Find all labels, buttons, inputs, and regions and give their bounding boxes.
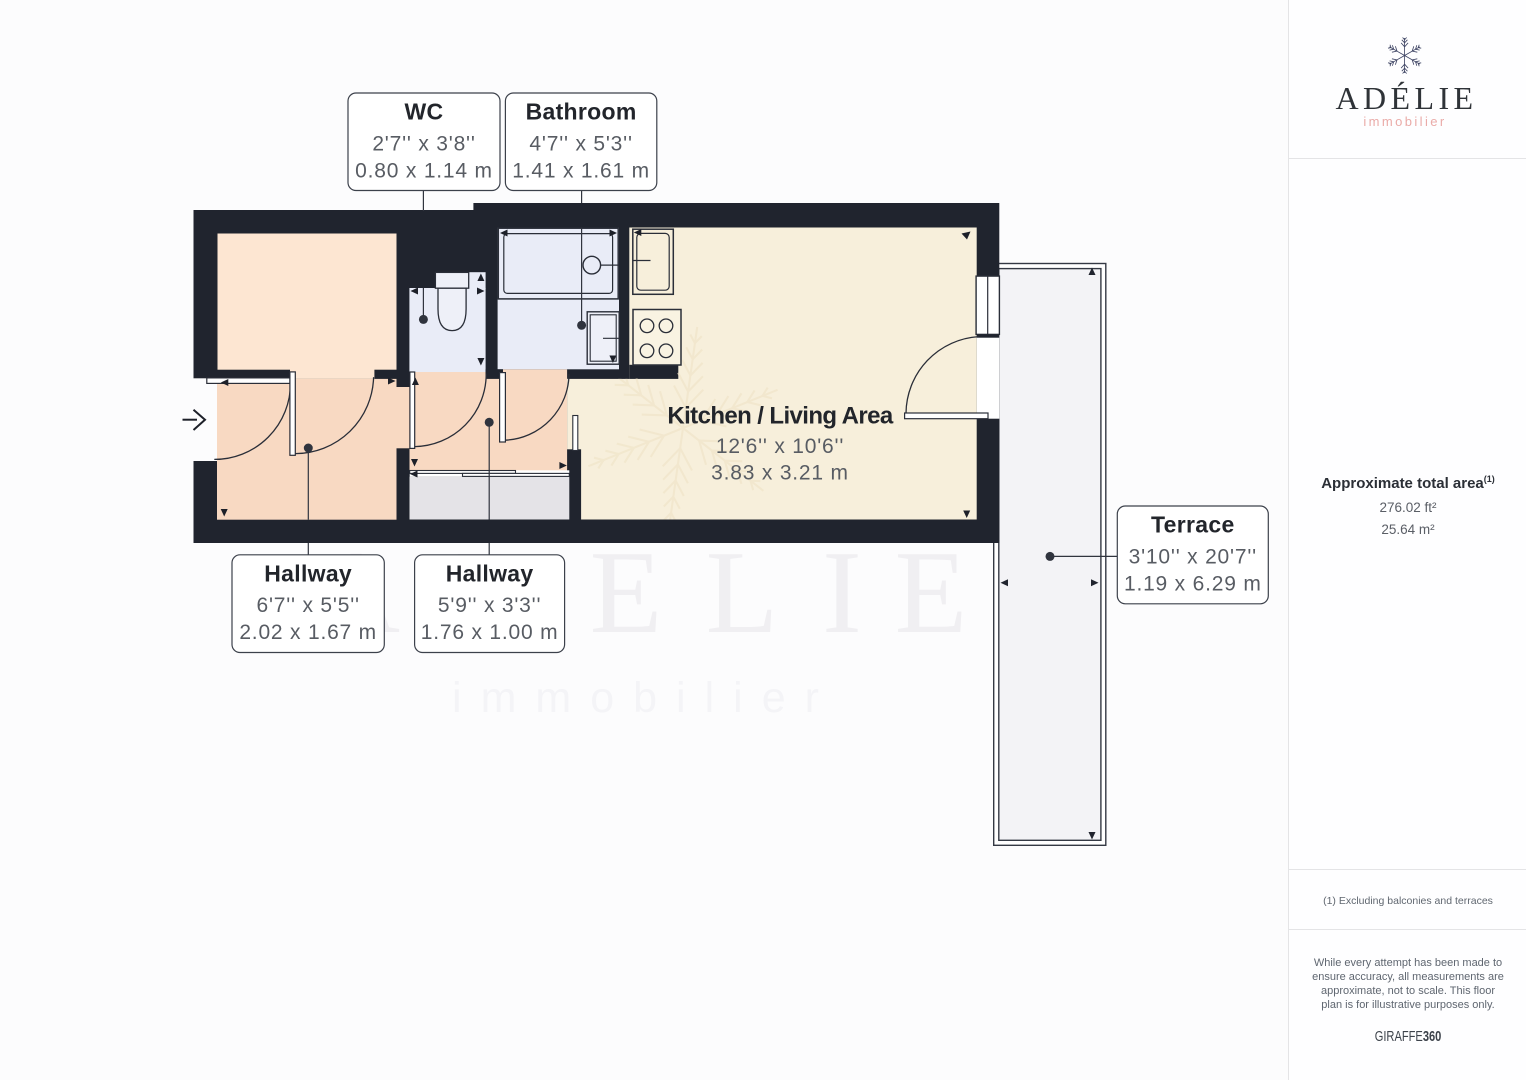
svg-text:Hallway: Hallway xyxy=(264,560,352,586)
svg-text:Kitchen / Living Area: Kitchen / Living Area xyxy=(667,403,893,430)
svg-text:1.76 x 1.00 m: 1.76 x 1.00 m xyxy=(421,621,559,644)
svg-text:E: E xyxy=(590,526,663,658)
svg-text:2.02 x 1.67 m: 2.02 x 1.67 m xyxy=(239,621,377,644)
svg-text:4'7'' x 5'3'': 4'7'' x 5'3'' xyxy=(529,132,632,155)
svg-text:3.83 x 3.21 m: 3.83 x 3.21 m xyxy=(711,461,849,484)
svg-text:ADÉLIE: ADÉLIE xyxy=(1336,80,1478,116)
svg-text:WC: WC xyxy=(405,99,444,125)
svg-text:E: E xyxy=(895,526,968,658)
svg-text:5'9'' x 3'3'': 5'9'' x 3'3'' xyxy=(438,594,541,617)
svg-text:6'7'' x 5'5'': 6'7'' x 5'5'' xyxy=(256,594,359,617)
svg-text:I: I xyxy=(822,526,862,658)
svg-text:immobilier: immobilier xyxy=(1363,114,1446,129)
svg-text:1.41 x 1.61 m: 1.41 x 1.61 m xyxy=(512,159,650,182)
svg-text:2'7'' x 3'8'': 2'7'' x 3'8'' xyxy=(372,132,475,155)
svg-text:immobilier: immobilier xyxy=(452,674,838,722)
svg-text:L: L xyxy=(706,526,779,658)
svg-text:1.19 x 6.29 m: 1.19 x 6.29 m xyxy=(1124,572,1262,595)
svg-text:Bathroom: Bathroom xyxy=(526,99,637,125)
svg-text:Terrace: Terrace xyxy=(1151,512,1235,538)
svg-text:12'6'' x 10'6'': 12'6'' x 10'6'' xyxy=(716,435,844,458)
svg-text:0.80 x 1.14 m: 0.80 x 1.14 m xyxy=(355,159,493,182)
svg-text:Hallway: Hallway xyxy=(446,560,534,586)
svg-text:3'10'' x 20'7'': 3'10'' x 20'7'' xyxy=(1129,545,1257,568)
